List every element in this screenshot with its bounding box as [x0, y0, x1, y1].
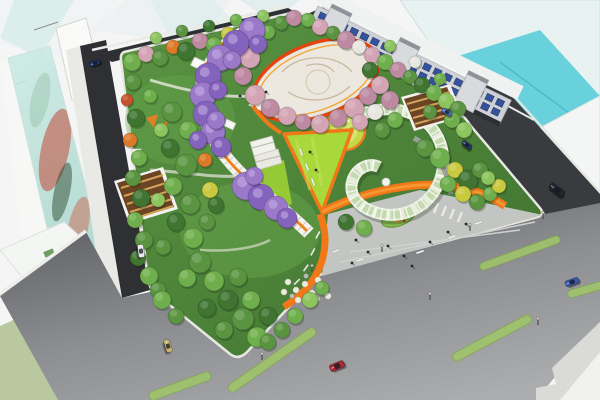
park-masterplan-aerial-render	[0, 0, 600, 400]
render-frame	[0, 0, 600, 400]
